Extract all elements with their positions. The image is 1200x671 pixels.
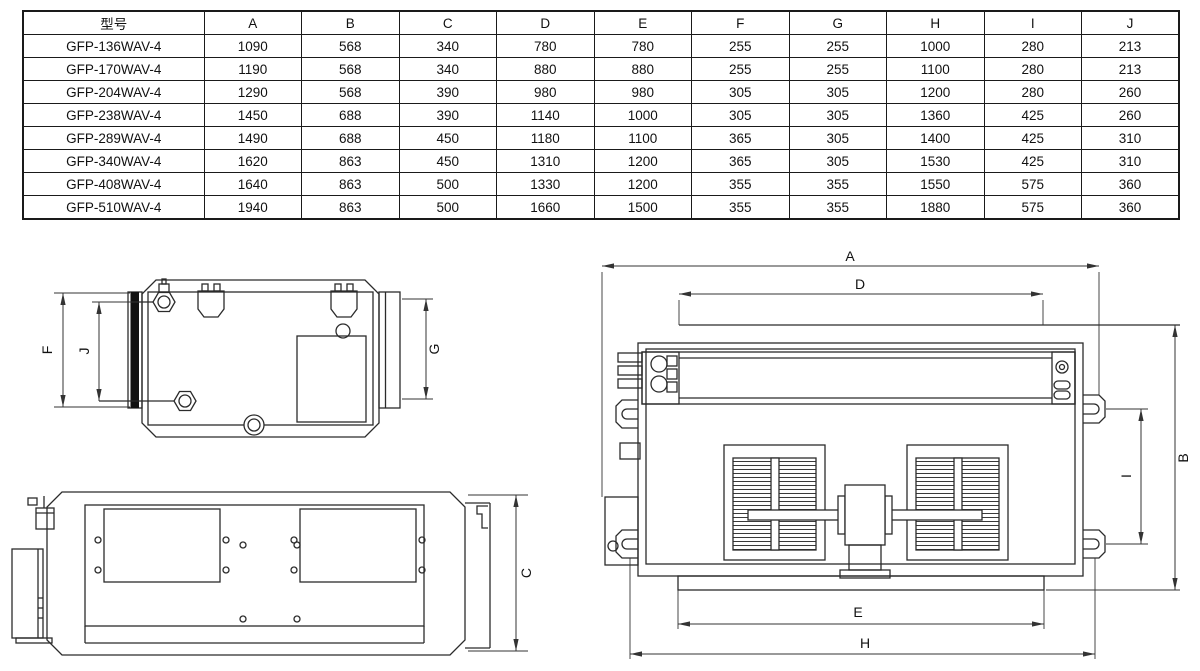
coil-end-port — [1056, 361, 1068, 373]
table-row: GFP-289WAV-41490688450118011003653051400… — [23, 127, 1179, 150]
dimension-d: D — [679, 276, 1043, 325]
drain-port — [244, 415, 264, 435]
model-cell: GFP-408WAV-4 — [23, 173, 204, 196]
dimension-cell: 575 — [984, 173, 1082, 196]
dimension-cell: 1140 — [497, 104, 595, 127]
model-cell: GFP-340WAV-4 — [23, 150, 204, 173]
dimension-cell: 1880 — [887, 196, 985, 220]
fan-housing-right — [907, 445, 1008, 560]
unit-body-side — [142, 280, 379, 437]
dimension-cell: 1330 — [497, 173, 595, 196]
hanger-bracket — [616, 530, 638, 558]
model-cell: GFP-204WAV-4 — [23, 81, 204, 104]
dimension-cell: 1500 — [594, 196, 692, 220]
column-header-h: H — [887, 11, 985, 35]
dimension-cell: 1550 — [887, 173, 985, 196]
dimension-cell: 500 — [399, 173, 497, 196]
right-collar — [465, 503, 490, 648]
hanger-bracket — [616, 400, 638, 428]
dimension-cell: 305 — [789, 150, 887, 173]
access-panel-right — [300, 509, 416, 582]
dimension-cell: 360 — [1082, 173, 1180, 196]
dimension-cell: 305 — [789, 104, 887, 127]
dimension-cell: 425 — [984, 150, 1082, 173]
model-cell: GFP-136WAV-4 — [23, 35, 204, 58]
model-cell: GFP-238WAV-4 — [23, 104, 204, 127]
dimension-cell: 280 — [984, 35, 1082, 58]
front-view-drawing: C — [5, 478, 550, 670]
dimension-cell: 568 — [302, 35, 400, 58]
dimension-cell: 365 — [692, 127, 790, 150]
dimension-cell: 980 — [594, 81, 692, 104]
dimension-cell: 863 — [302, 196, 400, 220]
dimension-cell: 340 — [399, 35, 497, 58]
hanger-bracket — [331, 284, 357, 317]
dim-label-f: F — [39, 346, 55, 355]
dimension-cell: 255 — [789, 58, 887, 81]
dimension-i: I — [1106, 409, 1148, 544]
dimension-cell: 500 — [399, 196, 497, 220]
dimension-cell: 360 — [1082, 196, 1180, 220]
dimension-cell: 1940 — [204, 196, 302, 220]
dimension-cell: 450 — [399, 127, 497, 150]
dimension-cell: 863 — [302, 173, 400, 196]
table-row: GFP-238WAV-41450688390114010003053051360… — [23, 104, 1179, 127]
dimension-cell: 1290 — [204, 81, 302, 104]
dimension-cell: 255 — [789, 35, 887, 58]
model-cell: GFP-170WAV-4 — [23, 58, 204, 81]
dimension-cell: 365 — [692, 150, 790, 173]
model-cell: GFP-289WAV-4 — [23, 127, 204, 150]
table-row: GFP-204WAV-41290568390980980305305120028… — [23, 81, 1179, 104]
table-header-row: 型号 A B C D E F G H I J — [23, 11, 1179, 35]
electrical-box-front — [12, 549, 52, 643]
dimension-cell: 1190 — [204, 58, 302, 81]
dimension-cell: 780 — [497, 35, 595, 58]
dim-label-b: B — [1175, 453, 1191, 462]
dimension-cell: 310 — [1082, 127, 1180, 150]
dimension-cell: 355 — [692, 173, 790, 196]
dimension-cell: 1100 — [887, 58, 985, 81]
dimension-cell: 280 — [984, 58, 1082, 81]
dim-label-c: C — [518, 568, 534, 578]
dimension-cell: 863 — [302, 150, 400, 173]
dimension-cell: 280 — [984, 81, 1082, 104]
table-row: GFP-136WAV-41090568340780780255255100028… — [23, 35, 1179, 58]
column-header-j: J — [1082, 11, 1180, 35]
dim-label-e: E — [853, 604, 862, 620]
column-header-c: C — [399, 11, 497, 35]
dimension-cell: 260 — [1082, 104, 1180, 127]
column-header-d: D — [497, 11, 595, 35]
dimension-g: G — [402, 299, 442, 399]
water-pipe-port — [651, 376, 667, 392]
dim-label-d: D — [855, 276, 865, 292]
dimension-cell: 340 — [399, 58, 497, 81]
hanger-hook — [477, 506, 488, 528]
dimension-cell: 688 — [302, 104, 400, 127]
air-vent-fitting — [139, 279, 175, 312]
inlet-collar — [128, 292, 142, 408]
pipe-clamp-detail — [28, 496, 54, 529]
table-body: GFP-136WAV-41090568340780780255255100028… — [23, 35, 1179, 220]
dimension-cell: 1090 — [204, 35, 302, 58]
table-row: GFP-340WAV-41620863450131012003653051530… — [23, 150, 1179, 173]
column-header-e: E — [594, 11, 692, 35]
dim-label-h: H — [860, 635, 870, 651]
dimension-cell: 1180 — [497, 127, 595, 150]
dimension-cell: 355 — [789, 173, 887, 196]
electrical-box — [297, 336, 366, 422]
dimension-cell: 213 — [1082, 58, 1180, 81]
dimension-cell: 255 — [692, 35, 790, 58]
dimension-cell: 355 — [692, 196, 790, 220]
dimension-cell: 568 — [302, 58, 400, 81]
column-header-b: B — [302, 11, 400, 35]
dimension-cell: 575 — [984, 196, 1082, 220]
dim-label-i: I — [1118, 474, 1134, 478]
dimension-cell: 310 — [1082, 150, 1180, 173]
dimension-cell: 568 — [302, 81, 400, 104]
fan-housing-left — [724, 445, 825, 560]
dim-label-g: G — [426, 344, 442, 355]
dimension-cell: 450 — [399, 150, 497, 173]
dimension-cell: 1200 — [594, 150, 692, 173]
dimension-cell: 880 — [594, 58, 692, 81]
filter-bar — [131, 292, 140, 408]
dimension-cell: 425 — [984, 127, 1082, 150]
dimension-cell: 1200 — [594, 173, 692, 196]
dimension-cell: 390 — [399, 104, 497, 127]
access-panel-left — [104, 509, 220, 582]
dimension-cell: 305 — [789, 81, 887, 104]
dim-label-j: J — [76, 348, 92, 355]
dimension-cell: 255 — [692, 58, 790, 81]
dimension-cell: 880 — [497, 58, 595, 81]
dimension-cell: 1660 — [497, 196, 595, 220]
hanger-bracket — [1083, 395, 1105, 423]
dimension-cell: 980 — [497, 81, 595, 104]
table-row: GFP-510WAV-41940863500166015003553551880… — [23, 196, 1179, 220]
dimension-cell: 1100 — [594, 127, 692, 150]
unit-body-front — [47, 492, 465, 655]
hanger-bracket — [198, 284, 224, 317]
dimension-cell: 1310 — [497, 150, 595, 173]
column-header-i: I — [984, 11, 1082, 35]
side-view-drawing: F J G — [30, 265, 460, 460]
table-row: GFP-170WAV-41190568340880880255255110028… — [23, 58, 1179, 81]
dimension-cell: 1530 — [887, 150, 985, 173]
dimension-cell: 305 — [789, 127, 887, 150]
dimension-j: J — [76, 302, 152, 401]
dimension-cell: 1400 — [887, 127, 985, 150]
panel-screws — [95, 537, 425, 622]
heat-exchanger-coil — [642, 352, 1075, 404]
dimension-c: C — [468, 495, 534, 651]
water-pipe-port — [651, 356, 667, 372]
column-header-g: G — [789, 11, 887, 35]
page: 型号 A B C D E F G H I J GFP-136WAV-410905… — [0, 0, 1200, 671]
dimension-cell: 390 — [399, 81, 497, 104]
dimension-cell: 305 — [692, 81, 790, 104]
dimension-e: E — [678, 590, 1044, 629]
dimension-cell: 1620 — [204, 150, 302, 173]
table-row: GFP-408WAV-41640863500133012003553551550… — [23, 173, 1179, 196]
dimension-cell: 1000 — [887, 35, 985, 58]
dimension-cell: 355 — [789, 196, 887, 220]
dimension-cell: 1360 — [887, 104, 985, 127]
dimension-cell: 688 — [302, 127, 400, 150]
dim-label-a: A — [845, 250, 855, 264]
outlet-collar — [379, 292, 400, 408]
dimension-cell: 305 — [692, 104, 790, 127]
dimension-cell: 1640 — [204, 173, 302, 196]
dimension-cell: 213 — [1082, 35, 1180, 58]
top-view-drawing: A D B I E — [595, 250, 1200, 670]
dimension-cell: 260 — [1082, 81, 1180, 104]
dimension-cell: 1000 — [594, 104, 692, 127]
model-cell: GFP-510WAV-4 — [23, 196, 204, 220]
dimension-cell: 1200 — [887, 81, 985, 104]
column-header-model: 型号 — [23, 11, 204, 35]
dimension-cell: 780 — [594, 35, 692, 58]
column-header-f: F — [692, 11, 790, 35]
column-header-a: A — [204, 11, 302, 35]
dimension-cell: 425 — [984, 104, 1082, 127]
dimension-cell: 1490 — [204, 127, 302, 150]
dimension-cell: 1450 — [204, 104, 302, 127]
dimensions-table: 型号 A B C D E F G H I J GFP-136WAV-410905… — [22, 10, 1180, 220]
hanger-bracket — [1083, 530, 1105, 558]
